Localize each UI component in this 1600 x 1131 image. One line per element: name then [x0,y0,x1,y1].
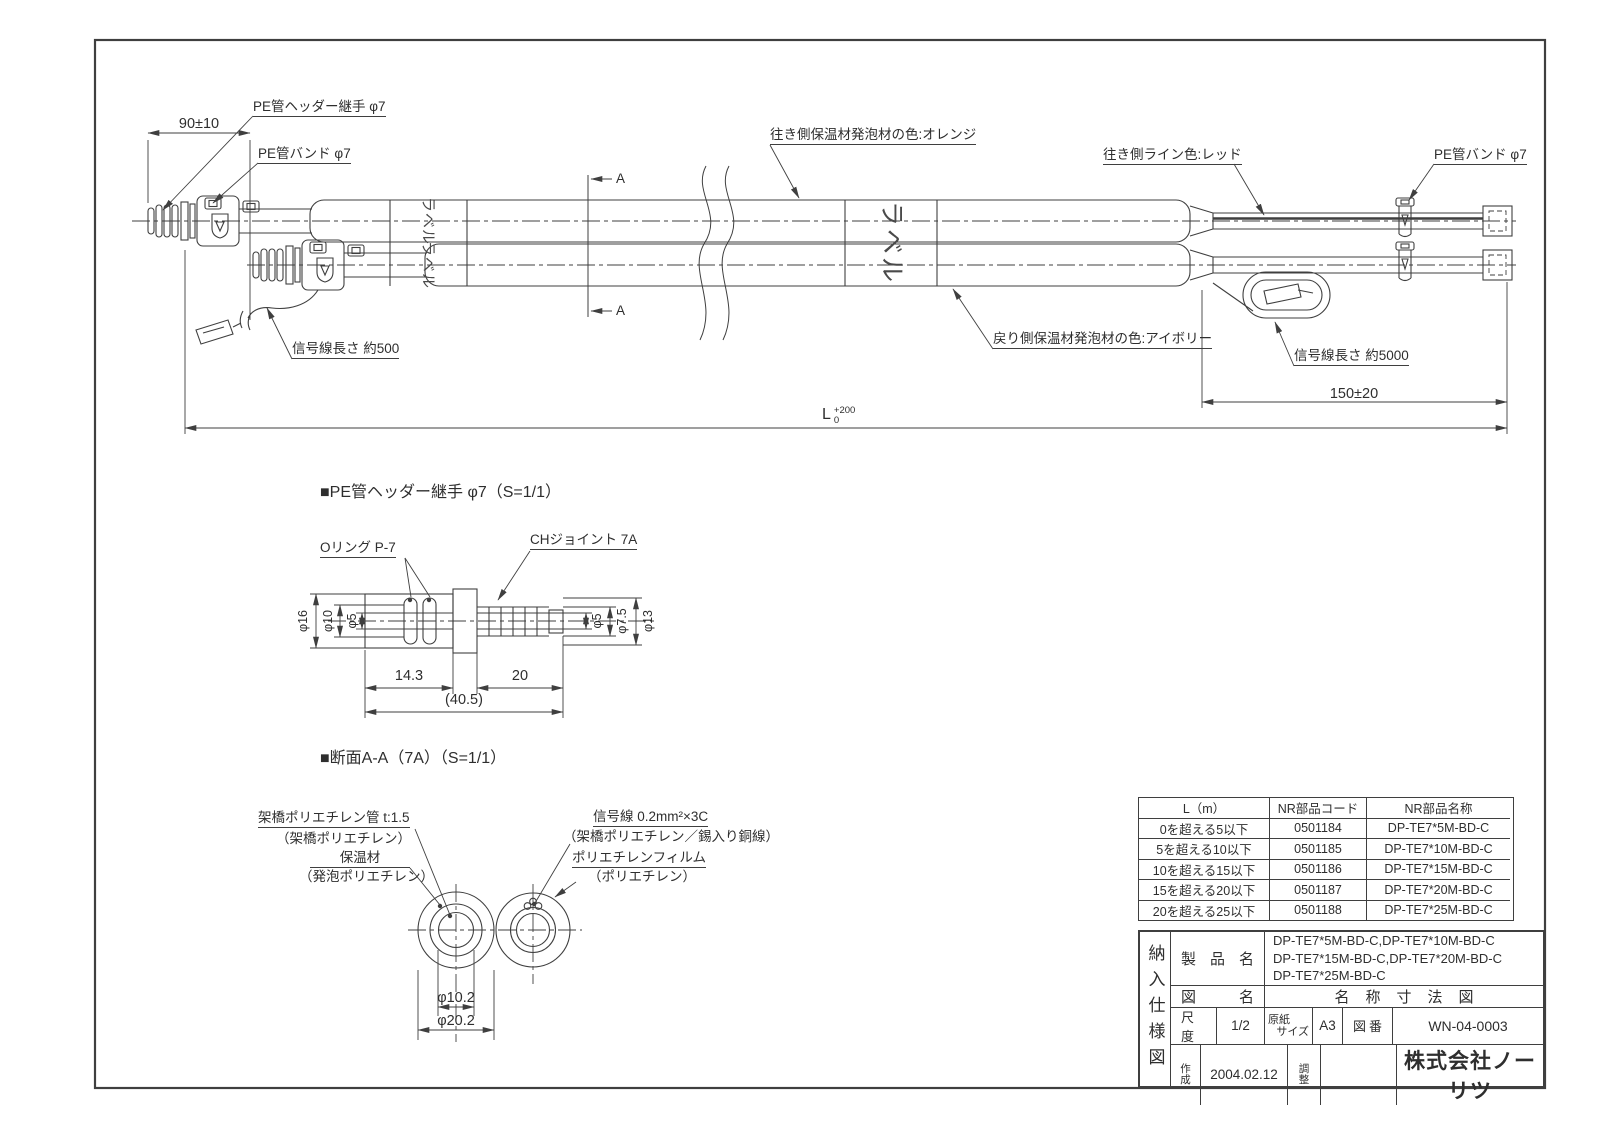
label-insulation-material: （発泡ポリエチレン） [299,869,434,885]
signal-wire-left [196,290,318,344]
title-block-doc-type: 納入仕様図 [1140,932,1171,1086]
table-row-cell: 0501187 [1270,880,1367,901]
label-signal-wire-material: （架橋ポリエチレン／錫入り銅線） [563,829,779,845]
label-signal-length-right: 信号線長さ 約5000 [1294,348,1409,366]
table-row-cell: 0501185 [1270,839,1367,860]
table-row-cell: 0501186 [1270,860,1367,881]
adjust-value-blank [1321,1045,1397,1105]
dimensions-main [148,133,1507,434]
label-xlpe-pipe-material: （架橋ポリエチレン） [276,831,411,847]
product-line-1: DP-TE7*5M-BD-C,DP-TE7*10M-BD-C [1273,932,1543,950]
dim-length-symbol: L [822,406,831,424]
drawing-sheet: PE管ヘッダー継手 φ7 90±10 PE管バンド φ7 往き側保温材発泡材の色… [0,0,1600,1131]
label-pe-header-joint: PE管ヘッダー継手 φ7 [253,99,386,117]
label-pe-film-material: （ポリエチレン） [588,869,696,885]
product-name-label: 製品名 [1171,932,1265,985]
drawing-number-label: 図番 [1343,1008,1393,1044]
dim-phi10: φ10 [321,610,335,632]
label-sticker-text-3: ラベル [877,201,906,285]
signal-wire-coil-right [1213,272,1330,318]
label-return-foam-color: 戻り側保温材発泡材の色:アイボリー [993,331,1212,349]
section-mark-bottom: A [616,303,625,319]
parts-table-header-range: L（m） [1139,798,1270,819]
pipe-centerlines [132,221,1516,265]
product-name-value: DP-TE7*5M-BD-C,DP-TE7*10M-BD-C DP-TE7*15… [1265,932,1543,985]
dim-40-5: (40.5) [445,692,483,709]
dim-150: 150±20 [1330,386,1378,403]
table-row-cell: 10を超える15以下 [1139,860,1270,881]
bare-pipes [1213,213,1483,273]
label-outgoing-foam-color: 往き側保温材発泡材の色:オレンジ [770,127,976,145]
label-ch-joint: CHジョイント 7A [530,532,637,550]
dim-20: 20 [512,668,528,685]
table-row-cell: 0を超える5以下 [1139,819,1270,840]
label-signal-wire: 信号線 0.2mm²×3C [593,809,708,827]
parts-table: L（m） NR部品コード NR部品名称 0を超える5以下 0501184 DP-… [1138,797,1514,921]
table-row-cell: 15を超える20以下 [1139,880,1270,901]
table-row-cell: DP-TE7*15M-BD-C [1367,860,1510,881]
pipe-band-clamps-right [1396,198,1414,281]
dim-phi10-2: φ10.2 [437,990,475,1007]
adjust-label: 調整 [1288,1045,1321,1105]
label-oring: Oリング P-7 [320,540,396,558]
dim-90: 90±10 [179,116,219,133]
table-row-cell: 0501184 [1270,819,1367,840]
table-row-cell: 20を超える25以下 [1139,901,1270,921]
product-line-2: DP-TE7*15M-BD-C,DP-TE7*20M-BD-C [1273,950,1543,968]
label-sticker-text-1: ラベル [419,197,436,245]
label-insulation: 保温材 [310,850,410,868]
label-outgoing-line-color: 往き側ライン色:レッド [1103,147,1242,165]
table-row-cell: 5を超える10以下 [1139,839,1270,860]
drawing-number-value: WN-04-0003 [1393,1008,1543,1044]
insulated-pipes [310,200,1213,286]
created-label-text: 作成 [1179,1064,1192,1086]
scale-label: 尺度 [1171,1008,1217,1044]
table-row-cell: 0501188 [1270,901,1367,921]
paper-size-label-line2: サイズ [1268,1026,1309,1038]
section-aa-title: ■断面A-A（7A）（S=1/1） [320,750,506,768]
dim-phi13: φ13 [641,610,655,632]
detail-joint-drawing [310,551,658,718]
label-sticker-text-2: ラベル [419,241,436,289]
paper-size-value: A3 [1313,1008,1343,1044]
leader-lines-main [163,116,1434,366]
label-pe-band-left: PE管バンド φ7 [258,146,351,164]
dim-overall-length: L +200 0 [822,406,855,426]
adjust-label-text: 調整 [1298,1064,1311,1086]
table-row-cell: DP-TE7*10M-BD-C [1367,839,1510,860]
label-signal-length-left: 信号線長さ 約500 [292,341,399,359]
created-date: 2004.02.12 [1201,1045,1288,1105]
title-block: 納入仕様図 製品名 DP-TE7*5M-BD-C,DP-TE7*10M-BD-C… [1138,930,1545,1088]
table-row-cell: DP-TE7*20M-BD-C [1367,880,1510,901]
scale-value: 1/2 [1217,1008,1265,1044]
product-line-3: DP-TE7*25M-BD-C [1273,967,1543,985]
table-row-cell: DP-TE7*25M-BD-C [1367,901,1510,921]
company-logo: 株式会社ノーリツ [1397,1045,1543,1105]
section-aa-drawing [408,829,582,1042]
drawing-name-label: 図名 [1171,986,1265,1007]
dim-phi75: φ7.5 [615,608,629,633]
section-mark-top: A [616,171,625,187]
created-label: 作成 [1171,1045,1201,1105]
label-sticker-blocks [390,200,937,286]
parts-table-header-code: NR部品コード [1270,798,1367,819]
dim-length-tol-lower: 0 [834,416,855,426]
detail-joint-title: ■PE管ヘッダー継手 φ7（S=1/1） [320,484,561,502]
company-name: 株式会社ノーリツ [1397,1045,1543,1105]
dim-14-3: 14.3 [395,668,423,685]
dim-phi5-left: φ5 [345,613,359,628]
dim-phi5-right: φ5 [590,613,604,628]
dim-phi20-2: φ20.2 [437,1013,475,1030]
dim-phi16: φ16 [296,610,310,632]
label-xlpe-pipe: 架橋ポリエチレン管 t:1.5 [258,810,410,828]
parts-table-header-name: NR部品名称 [1367,798,1510,819]
pipe-end-caps [1483,206,1512,280]
break-lines [699,166,734,340]
label-pe-band-right: PE管バンド φ7 [1434,147,1527,165]
drawing-name-value: 名称寸法図 [1265,986,1543,1007]
table-row-cell: DP-TE7*5M-BD-C [1367,819,1510,840]
paper-size-label: 原紙 サイズ [1265,1008,1313,1044]
label-pe-film: ポリエチレンフィルム [572,850,706,868]
paper-size-label-line1: 原紙 [1268,1014,1309,1026]
section-line-aa [588,175,612,317]
